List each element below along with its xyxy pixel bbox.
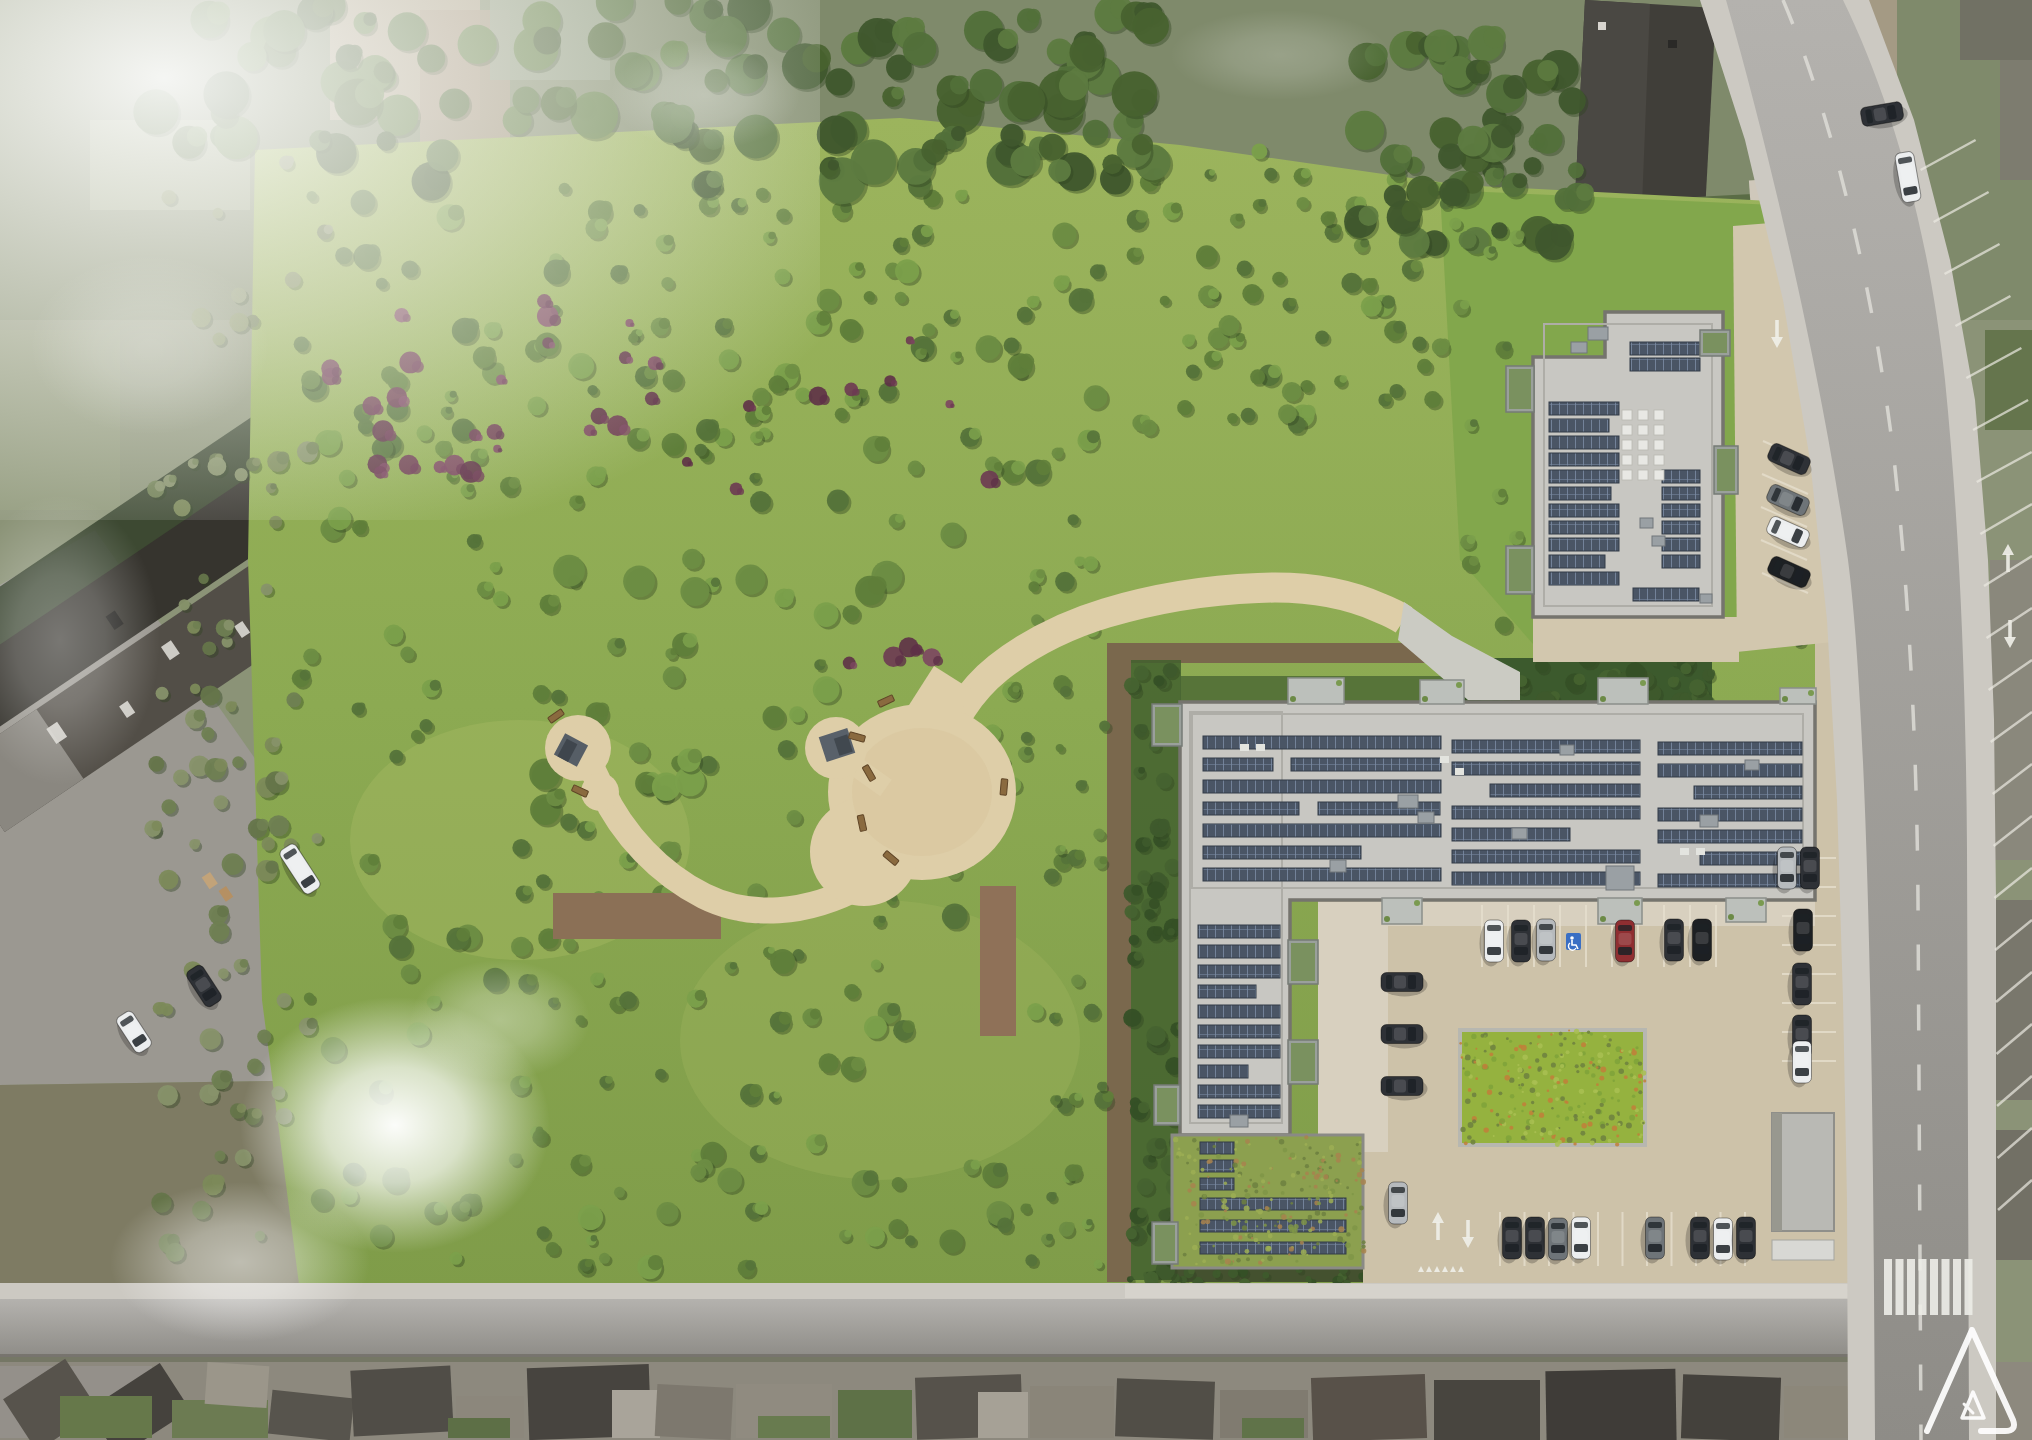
bush [546,1242,560,1256]
sedum-speckle [1638,1081,1641,1084]
garage-shed-shadow [1772,1113,1782,1231]
photo-block [1995,900,2032,1100]
sedum-speckle [1560,1064,1564,1068]
bush [1046,1234,1053,1241]
solar-row [1203,780,1441,793]
rooftop-unit [1330,860,1346,872]
bush [554,789,565,800]
bush [827,490,849,512]
sedum-speckle [1206,1160,1210,1164]
sedum-speckle [1304,1135,1308,1139]
sedum-speckle [1603,1035,1607,1039]
bush [895,514,904,523]
sedum-speckle [1489,1041,1493,1045]
house-roof [1784,1386,1856,1438]
sedum-speckle [1254,1238,1259,1243]
bush [1060,845,1066,851]
bush [173,770,189,786]
bush [222,853,244,875]
sedum-speckle [1187,1188,1191,1192]
crosswalk-stripe [1930,1259,1938,1315]
sedum-speckle [1524,1073,1530,1079]
bush [1013,686,1020,693]
sedum-speckle [1616,1111,1619,1114]
car-rear-window [1514,925,1528,931]
bush [215,1151,226,1162]
sedum-speckle [1613,1079,1615,1081]
sedum-speckle [1261,1258,1265,1262]
sedum-speckle [1183,1253,1187,1257]
sedum-speckle [1560,1053,1563,1056]
terrace-plant [1634,900,1640,906]
sedum-speckle [1621,1049,1624,1052]
bush [941,522,965,546]
solar-row [1630,358,1700,371]
bush [648,1255,663,1270]
sedum-speckle [1536,1092,1541,1097]
sedum-speckle [1581,1123,1586,1128]
bush [1559,87,1586,114]
sedum-speckle [1537,1068,1541,1072]
bush [835,408,848,421]
solar-row [1198,1025,1280,1038]
solar-row [1203,868,1441,881]
solar-row [1658,764,1802,777]
park-bench [1000,779,1008,796]
car-rear-window [1551,1223,1565,1229]
bush [1491,222,1508,239]
house-roof [978,1392,1028,1438]
terrace-plant [1384,916,1390,922]
bush [578,1205,603,1230]
sedum-speckle [1566,1101,1569,1104]
bush [1021,732,1033,744]
bush [855,262,864,271]
sedum-speckle [1464,1141,1468,1145]
sedum-speckle [1464,1042,1468,1046]
car-roof-highlight [1394,1028,1406,1041]
car-rear-window [1648,1222,1662,1228]
sedum-speckle [1634,1087,1638,1091]
sedum-speckle [1550,1033,1552,1035]
sedum-speckle [1308,1215,1313,1220]
solar-row [1549,504,1619,517]
skylight [1638,470,1648,480]
sedum-speckle [1553,1085,1557,1089]
sedum-speckle [1606,1123,1609,1126]
sedum-speckle [1523,1131,1527,1135]
bush [1341,273,1361,293]
car [1480,920,1504,967]
car [1788,1041,1812,1088]
crosswalk-stripe [1965,1259,1973,1315]
sedum-speckle [1506,1135,1512,1141]
bush [209,921,229,941]
sedum-speckle [1249,1234,1252,1237]
sedum-speckle [1237,1174,1241,1178]
sedum-speckle [1582,1116,1584,1118]
bush [1065,1222,1074,1231]
bush [1337,1276,1343,1282]
bush [1133,248,1142,257]
planting-bed-vertical [980,886,1016,1036]
bush [159,870,179,890]
bush [1149,898,1160,909]
bush [257,1030,271,1044]
car-roof-highlight [1392,1195,1405,1207]
sedum-speckle [1528,1066,1531,1069]
bush [368,854,380,866]
bush [1516,231,1525,240]
flower-patch [911,340,915,344]
bush [774,1092,781,1099]
car-roof-highlight [1394,976,1406,989]
sedum-speckle [1270,1198,1273,1201]
sedum-speckle [1306,1254,1308,1256]
sedum-speckle [1301,1249,1307,1255]
bush [688,749,703,764]
sedum-speckle [1252,1182,1258,1188]
car-roof-highlight [1529,1230,1542,1242]
bush [262,837,276,851]
sedum-speckle [1522,1055,1527,1060]
sedum-speckle [1356,1143,1359,1146]
bush [840,319,861,340]
bush [214,795,228,809]
bush [1084,1004,1100,1020]
sedum-speckle [1176,1155,1179,1158]
bush [998,29,1018,49]
bush [1268,365,1281,378]
sedum-speckle [1522,1102,1526,1106]
sedum-speckle [1509,1040,1512,1043]
sedum-speckle [1585,1070,1590,1075]
bush [1412,337,1426,351]
terrace-plant [1758,900,1764,906]
sedum-speckle [1289,1157,1292,1160]
sedum-speckle [1308,1146,1311,1149]
terrace-plant [1336,680,1342,686]
car-rear-window [1780,852,1794,858]
sedum-speckle [1508,1115,1511,1118]
car [1709,1218,1733,1265]
sedum-speckle [1600,1067,1606,1073]
bush [1052,222,1076,246]
sedum-speckle [1192,1245,1197,1250]
car-roof-highlight [1668,932,1681,944]
car [1544,1218,1568,1265]
bush [1196,245,1218,267]
solar-row [1549,453,1619,466]
bush [1054,1013,1061,1020]
rooftop-unit [1606,866,1634,890]
sedum-speckle [1510,1094,1515,1099]
bush [511,937,531,957]
bush [905,1235,916,1246]
car-rear-window [1539,924,1553,930]
cloud [30,255,270,435]
bush [551,690,565,704]
skylight [1622,470,1632,480]
bush [1055,1095,1061,1101]
car-rear-window [1487,925,1501,931]
bush [230,701,237,708]
sedum-speckle [1555,1142,1560,1147]
sedum-speckle [1638,1061,1642,1065]
solar-row [1203,736,1441,749]
bush [717,1168,742,1193]
car-windshield [1795,990,1809,998]
car-windshield [1796,936,1810,944]
sedum-speckle [1629,1054,1631,1056]
sedum-speckle [1482,1064,1487,1069]
sedum-speckle [1566,1050,1570,1054]
bush [1025,1204,1031,1210]
rooftop-unit [1640,518,1653,528]
site-plan-canvas [0,0,2032,1440]
sedum-speckle [1305,1164,1309,1168]
sedum-speckle [1470,1140,1475,1145]
bush [560,813,577,830]
sedum-speckle [1202,1259,1206,1263]
skylight [1638,455,1648,465]
bush [787,810,802,825]
bush [1264,168,1277,181]
sedum-speckle [1465,1099,1471,1105]
car-roof-highlight [1796,1028,1809,1040]
sedum-speckle [1558,1043,1560,1045]
crosswalk-stripe [1919,1259,1927,1315]
sedum-speckle [1288,1253,1290,1255]
bush [1470,419,1478,427]
bush [1493,168,1504,179]
bush [864,1016,887,1039]
bush [1227,413,1238,424]
skylight [1455,768,1464,775]
bush [1087,430,1100,443]
house-roof [655,1384,734,1440]
sedum-speckle [1281,1191,1285,1195]
sedum-speckle [1357,1160,1362,1165]
solar-row [1549,470,1619,483]
flower-patch [891,380,897,386]
sedum-speckle [1320,1178,1324,1182]
sedum-speckle [1224,1181,1227,1184]
rooftop-unit [1700,594,1712,603]
balcony-planting [1509,369,1531,409]
bush [1141,419,1158,436]
bush [902,1020,915,1033]
sedum-speckle [1518,1084,1520,1086]
sedum-speckle [1358,1152,1361,1155]
rooftop-unit [1512,828,1527,839]
sedum-speckle [1631,1105,1636,1110]
bush [1004,338,1020,354]
solar-row [1549,402,1619,415]
sedum-speckle [1607,1052,1610,1055]
bush [1032,296,1040,304]
bush [844,984,859,999]
sedum-speckle [1203,1194,1207,1198]
sedum-speckle [1521,1135,1526,1140]
car-windshield [1391,1209,1405,1217]
sedum-speckle [1351,1158,1355,1162]
sedum-speckle [1191,1201,1197,1207]
sedum-speckle [1538,1043,1543,1048]
car-roof-highlight [1781,860,1794,872]
handicap-space-symbol [1566,933,1581,950]
solar-row [1658,808,1802,821]
bush [1533,124,1563,154]
solar-row [1198,985,1256,998]
sedum-speckle [1638,1090,1642,1094]
house-roof [60,1396,152,1438]
walkway-west [1318,902,1388,1152]
cloud [1170,10,1390,100]
sedum-speckle [1637,1133,1639,1135]
solar-row [1549,555,1605,568]
terrace-plant [1728,914,1734,920]
bush [449,1252,462,1265]
bush [950,310,959,319]
bush [1057,448,1064,455]
sedum-speckle [1506,1037,1509,1040]
sedum-speckle [1187,1154,1192,1159]
sedum-speckle [1514,1107,1516,1109]
bush [682,549,702,569]
sedum-speckle [1522,1091,1524,1093]
sedum-speckle [1530,1087,1536,1093]
sedum-speckle [1590,1141,1595,1146]
car-roof-highlight [1394,1080,1406,1093]
sedum-speckle [1521,1045,1527,1051]
sedum-speckle [1612,1125,1617,1130]
bush [1439,339,1450,350]
bush [1123,1009,1141,1027]
car-roof-highlight [1873,107,1887,122]
bush [190,684,200,694]
sedum-speckle [1249,1179,1252,1182]
sedum-speckle [1245,1139,1250,1144]
bush [1188,335,1196,343]
solar-row [1198,925,1280,938]
flower-patch [918,649,924,655]
bush [1099,720,1110,731]
sedum-speckle [1354,1210,1357,1213]
bush [161,799,176,814]
bush [1573,674,1585,686]
sedum-speckle [1316,1196,1320,1200]
bush [1211,351,1221,361]
sedum-speckle [1360,1168,1365,1173]
sedum-speckle [1468,1088,1472,1092]
sedum-speckle [1362,1240,1366,1244]
bush [1417,359,1432,374]
sedum-speckle [1238,1235,1242,1239]
bush [993,1163,1008,1178]
solar-row [1198,1005,1280,1018]
bush [971,1160,981,1170]
solar-row [1662,538,1700,551]
sedum-speckle [1468,1122,1474,1128]
car-rear-window [1795,1046,1809,1052]
car [1688,919,1712,966]
bush [970,69,1002,101]
sedum-speckle [1191,1170,1196,1175]
sedum-speckle [1519,1086,1522,1089]
bush [179,599,190,610]
solar-row [1662,555,1700,568]
car-windshield [1408,1079,1416,1093]
bush [1288,298,1296,306]
bush [1074,1093,1082,1101]
car-rear-window [1795,968,1809,974]
sedum-speckle [1302,1176,1306,1180]
bush [585,1260,593,1268]
sedum-speckle [1529,1042,1532,1045]
house-roof [448,1418,510,1438]
bush [533,685,550,702]
car-windshield [1667,946,1681,954]
sedum-speckle [1322,1155,1325,1158]
skylight [1622,455,1632,465]
sedum-speckle [1317,1201,1321,1205]
sedum-speckle [1290,1202,1293,1205]
sedum-speckle [1595,1089,1598,1092]
bush [1459,231,1477,249]
sedum-speckle [1291,1173,1296,1178]
bush [810,1009,821,1020]
car-rear-window [1618,925,1632,931]
small-shed [1772,1240,1834,1260]
bush [484,582,494,592]
sedum-speckle [1257,1242,1259,1244]
sedum-speckle [1283,1148,1288,1153]
bush [668,842,681,855]
sedum-speckle [1248,1185,1251,1188]
sedum-speckle [1493,1135,1495,1137]
sedum-speckle [1615,1142,1619,1146]
sedum-speckle [1616,1135,1619,1138]
bush [1484,26,1506,48]
bush [359,520,368,529]
bush [1134,952,1143,961]
bush [605,1076,613,1084]
bush [762,706,784,728]
bush [1051,1192,1057,1198]
house-roof [1030,1386,1114,1438]
sedum-speckle [1256,1225,1258,1227]
sedum-speckle [1548,1098,1553,1103]
bush [193,621,201,629]
bush [711,578,720,587]
bush [1235,214,1243,222]
skylight [1622,440,1632,450]
bush [1568,162,1584,178]
bush [814,602,839,627]
sedum-speckle [1579,1089,1584,1094]
bush [1576,183,1594,201]
sedum-speckle [1265,1246,1271,1252]
sedum-speckle [1257,1209,1263,1215]
sedum-speckle [1532,1110,1534,1112]
bush [157,1085,178,1106]
sedum-speckle [1590,1032,1593,1035]
sedum-speckle [1572,1042,1575,1045]
bush [1411,260,1423,272]
sedum-speckle [1514,1047,1518,1051]
sedum-speckle [1465,1055,1471,1061]
